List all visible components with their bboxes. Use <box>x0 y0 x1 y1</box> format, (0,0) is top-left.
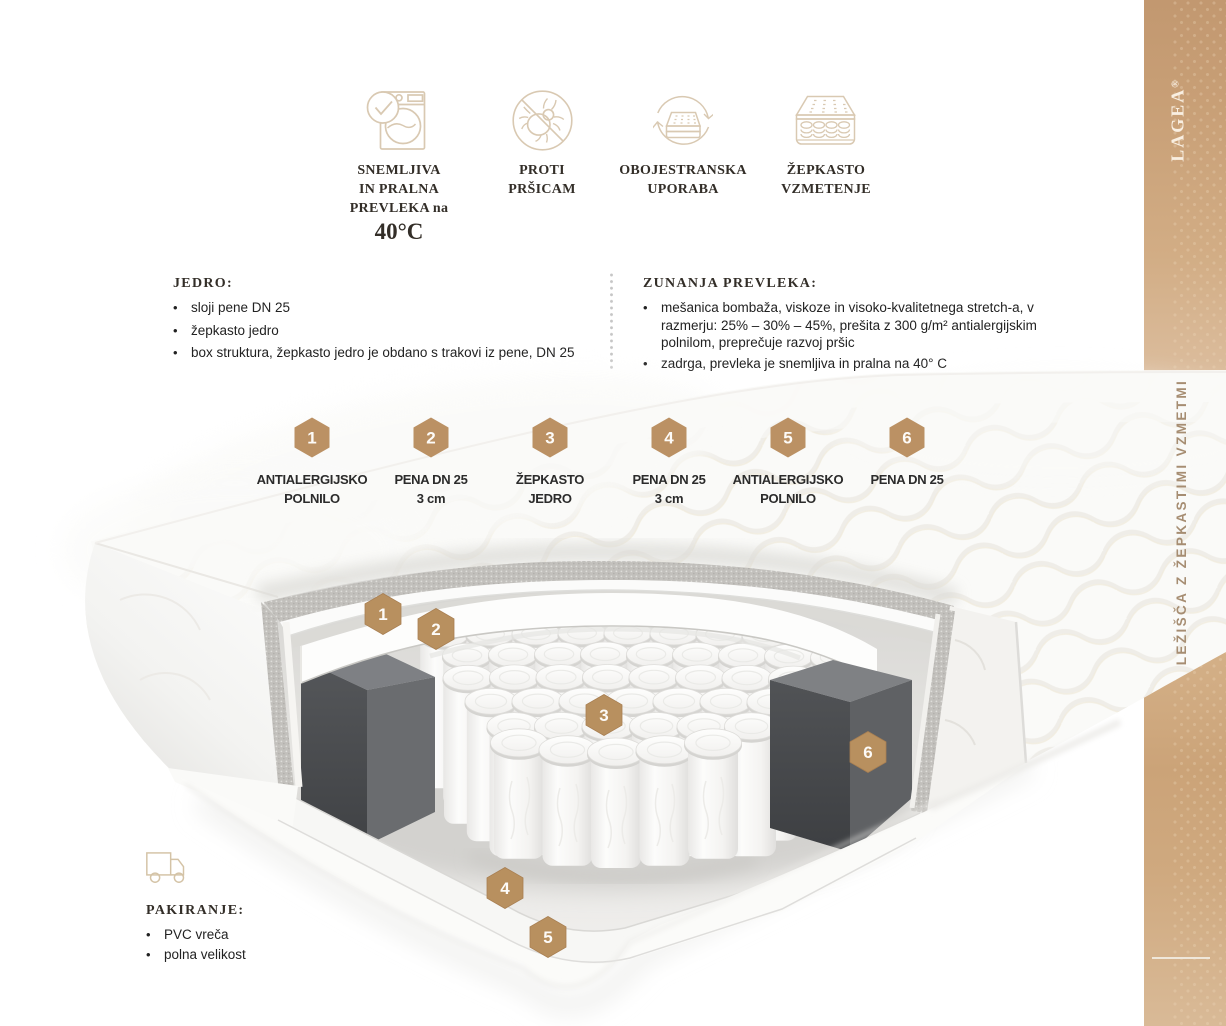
svg-text:3: 3 <box>599 706 608 725</box>
svg-text:3: 3 <box>545 429 554 448</box>
svg-text:4: 4 <box>664 429 674 448</box>
svg-text:6: 6 <box>863 743 872 762</box>
svg-text:5: 5 <box>783 429 792 448</box>
svg-text:5: 5 <box>543 928 552 947</box>
svg-text:1: 1 <box>307 429 316 448</box>
svg-text:4: 4 <box>500 879 510 898</box>
svg-text:1: 1 <box>378 605 387 624</box>
svg-text:2: 2 <box>426 429 435 448</box>
svg-text:2: 2 <box>431 620 440 639</box>
svg-text:6: 6 <box>902 429 911 448</box>
